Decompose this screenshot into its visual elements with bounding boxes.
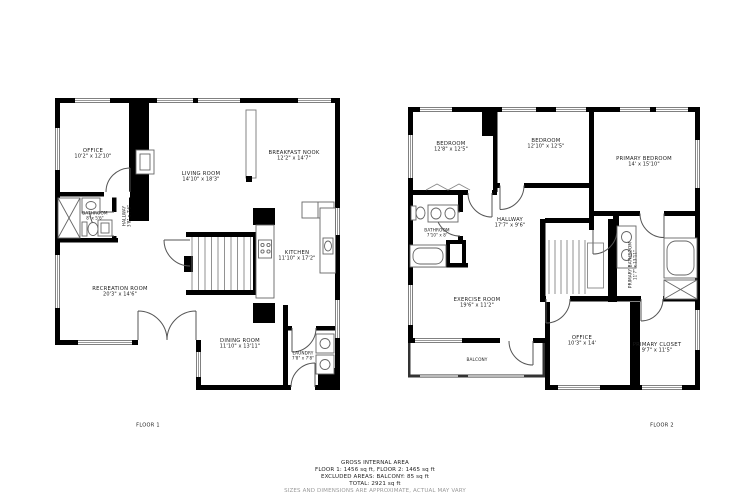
room-label-hallway-f2: HALLWAY 17'7" x 9'6" [495,216,526,228]
room-label-breakfast-nook: BREAKFAST NOOK 12'2" x 14'7" [268,149,319,161]
room-dims: 10'3" x 14' [568,340,596,346]
room-label-office-f1: OFFICE 10'2" x 12'10" [74,147,111,159]
floor1-door-arcs [90,168,316,387]
room-dims: 3'8" x 7'6" [127,205,132,227]
washer-dryer-icon [316,334,334,374]
room-label-living-room: LIVING ROOM 14'10" x 18'3" [182,170,220,182]
disclaimer-line: SIZES AND DIMENSIONS ARE APPROXIMATE, AC… [225,487,525,494]
balcony-door-arc [509,341,533,365]
french-door-right-arc [167,311,196,340]
room-label-primary-bathroom: PRIMARY BATHROOM 11'7" x 13'11" [629,242,638,288]
bedroom1-door-arc [468,193,492,217]
kitchen-sink-counter-icon [320,208,336,273]
closet-door-arc [641,299,663,321]
room-dims: 19'6" x 11'2" [454,302,501,308]
area-summary: GROSS INTERNAL AREA FLOOR 1: 1456 sq ft,… [225,459,525,494]
room-label-hallway-f1: HALLWAY 3'8" x 7'6" [123,205,132,227]
total-area-line: TOTAL: 2921 sq ft [225,480,525,487]
gross-area-title: GROSS INTERNAL AREA [225,459,525,466]
room-dims: 14'10" x 18'3" [182,176,220,182]
room-label-recreation-room: RECREATION ROOM 20'3" x 14'6" [92,285,147,297]
floor1-tag: FLOOR 1 [136,422,160,428]
room-name: BALCONY [467,358,488,363]
room-dims: 17'7" x 9'6" [495,222,526,228]
room-label-dining-room: DINING ROOM 11'10" x 13'11" [220,337,260,349]
room-label-bathroom-f2: BATHROOM 7'10" x 8' [424,229,449,238]
floorplan-canvas [0,0,750,500]
fireplace-icon [136,150,154,174]
room-dims: 12'10" x 12'5" [527,143,564,149]
room-dims: 8' x 5'6" [82,216,107,221]
excluded-areas-line: EXCLUDED AREAS: BALCONY: 85 sq ft [225,473,525,480]
shower-icon [664,280,697,299]
floor-areas-line: FLOOR 1: 1456 sq ft, FLOOR 2: 1465 sq ft [225,466,525,473]
laundry-exterior-door-arc [291,363,315,387]
room-label-exercise-room: EXERCISE ROOM 19'6" x 11'2" [454,296,501,308]
room-label-bedroom-2: BEDROOM 12'10" x 12'5" [527,137,564,149]
room-label-balcony: BALCONY [467,358,488,363]
floor2-tag: FLOOR 2 [650,422,674,428]
double-sink-icon [428,205,458,222]
stairs-icon-floor1 [192,237,251,290]
room-label-primary-closet: PRIMARY CLOSET 9'7" x 11'5" [633,341,682,353]
room-dims: 11'7" x 13'11" [633,242,638,288]
kitchen-counter-icon [256,225,274,298]
room-dims: 7'10" x 8' [424,233,449,238]
linen-closet-interior [450,244,462,263]
floorplan-page: OFFICE 10'2" x 12'10" LIVING ROOM 14'10"… [0,0,750,500]
toilet-icon [411,206,425,220]
column-icon [246,110,256,182]
primary-bathroom-door-arc [640,214,664,238]
vanity-icon [98,220,112,236]
room-dims: 10'2" x 12'10" [74,153,111,159]
room-dims: 11'10" x 13'11" [220,343,260,349]
room-dims: 12'8" x 12'5" [434,146,468,152]
room-label-laundry: LAUNDRY 7'8" x 7'8" [292,352,314,361]
primary-bathtub-icon [664,238,697,278]
toilet-icon [82,222,98,236]
floor1-windows [56,99,340,378]
bathtub-icon [410,245,446,267]
room-dims: 14' x 15'10" [616,161,672,167]
laundry-door-arc [292,328,316,352]
shower-icon [58,198,80,238]
office-door-arc [106,168,130,192]
room-dims: 9'7" x 11'5" [633,347,682,353]
room-dims: 11'10" x 17'2" [278,255,315,261]
room-dims: 7'8" x 7'8" [292,356,314,361]
room-label-office-f2: OFFICE 10'3" x 14' [568,334,596,346]
bedroom2-door-arc [500,186,524,210]
room-label-bathroom-f1: BATHROOM 8' x 5'6" [82,212,107,221]
floor1-walls [55,98,340,390]
stairs-icon-floor2 [549,240,604,294]
room-dims: 12'2" x 14'7" [268,155,319,161]
room-dims: 20'3" x 14'6" [92,291,147,297]
closet-doors-icon [426,184,470,190]
room-label-primary-bedroom: PRIMARY BEDROOM 14' x 15'10" [616,155,672,167]
room-label-bedroom-1: BEDROOM 12'8" x 12'5" [434,140,468,152]
room-label-kitchen: KITCHEN 11'10" x 17'2" [278,249,315,261]
french-door-left-arc [138,311,167,340]
